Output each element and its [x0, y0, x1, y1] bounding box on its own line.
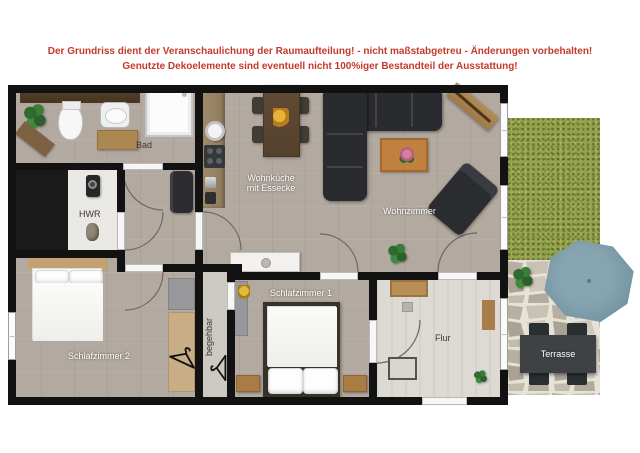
wall-bad-east [195, 85, 203, 170]
door-schlafzimmer2 [125, 264, 163, 272]
dining-table [263, 85, 300, 157]
washer-drum [88, 180, 97, 189]
flur-bench [388, 357, 417, 380]
door-hwr [117, 212, 125, 250]
garden-lawn [507, 118, 600, 260]
door-schlafzimmer1-flur [369, 320, 377, 363]
door-flur [438, 272, 477, 280]
ornament-gold-icon [238, 285, 250, 300]
bed-schlafzimmer2 [32, 268, 102, 340]
recliner-chair [426, 161, 500, 237]
bath-sink-icon [100, 102, 130, 128]
washer-icon [86, 175, 100, 197]
flower-icon [399, 146, 415, 164]
parasol-pole [587, 279, 592, 284]
toilet-tank [62, 101, 81, 110]
kitchen-sink-icon [205, 121, 225, 141]
nightstand [236, 375, 260, 392]
door-closet [227, 282, 235, 310]
shower-icon [145, 86, 193, 137]
disclaimer-line-2: Genutzte Dekoelemente sind eventuell nic… [0, 59, 640, 74]
door-bad [123, 163, 163, 170]
apartment-plan: Bad HWR [8, 85, 508, 405]
corridor-chair [170, 171, 193, 213]
kitchen-appliance-icon [205, 192, 216, 204]
flur-plant-icon [473, 370, 488, 384]
flur-side-mat [482, 300, 495, 330]
stove-icon [204, 145, 225, 168]
wall-closet-west [195, 264, 203, 405]
sofa-left-arm [323, 88, 367, 201]
floorplan-page: Der Grundriss dient der Veranschaulichun… [0, 0, 640, 453]
duvet [33, 283, 103, 341]
door-schlafzimmer1 [320, 272, 358, 280]
stairwell-void [8, 163, 68, 258]
cabinet-gray [168, 278, 195, 310]
room-label-hwr: HWR [79, 209, 101, 219]
recliner-wrap [425, 162, 500, 235]
wall-bad-south [8, 163, 203, 170]
terrace-table: Terrasse [520, 335, 596, 373]
room-label-schlafzimmer1: Schlafzimmer 1 [270, 288, 332, 298]
door-terrace [500, 298, 508, 370]
sink-bowl [105, 108, 127, 124]
door-kitchen [195, 212, 203, 250]
pillow [268, 368, 303, 394]
room-label-schlafzimmer2: Schlafzimmer 2 [68, 351, 130, 361]
fruit-bowl-icon [273, 108, 289, 128]
disclaimer-text: Der Grundriss dient der Veranschaulichun… [0, 44, 640, 74]
room-label-begehbar: begehbar [204, 307, 226, 367]
coffee-machine-icon [205, 177, 216, 188]
flur-small-item [402, 302, 413, 312]
window-schlafzimmer2 [8, 312, 16, 360]
terrace-chair [529, 371, 549, 385]
bath-rug [97, 130, 138, 150]
pillow [69, 270, 103, 284]
laundry-basket-icon [86, 223, 99, 241]
terrace-plant-icon [512, 266, 534, 290]
door-entrance [422, 397, 467, 405]
nightstand [343, 375, 367, 392]
room-label-wohnkueche: Wohnküche mit Essecke [226, 173, 316, 193]
living-rug [380, 138, 428, 172]
window-living-1 [500, 103, 508, 157]
room-label-terrasse: Terrasse [520, 349, 596, 359]
wall-north [8, 85, 508, 93]
disclaimer-line-1: Der Grundriss dient der Veranschaulichun… [0, 44, 640, 59]
pillow [35, 270, 69, 284]
mattress [267, 306, 336, 366]
doormat [390, 280, 428, 297]
living-plant-icon [387, 243, 408, 265]
toilet-icon [58, 104, 83, 140]
room-label-wohnzimmer: Wohnzimmer [383, 206, 436, 216]
window-living-2 [500, 185, 508, 250]
terrace-chair [567, 371, 587, 385]
sideboard-knob [261, 258, 271, 268]
pillow [303, 368, 338, 394]
room-label-bad: Bad [136, 140, 152, 150]
bed-schlafzimmer1 [263, 302, 340, 397]
wall-hwr-south [8, 250, 125, 258]
room-label-flur: Flur [435, 333, 451, 343]
